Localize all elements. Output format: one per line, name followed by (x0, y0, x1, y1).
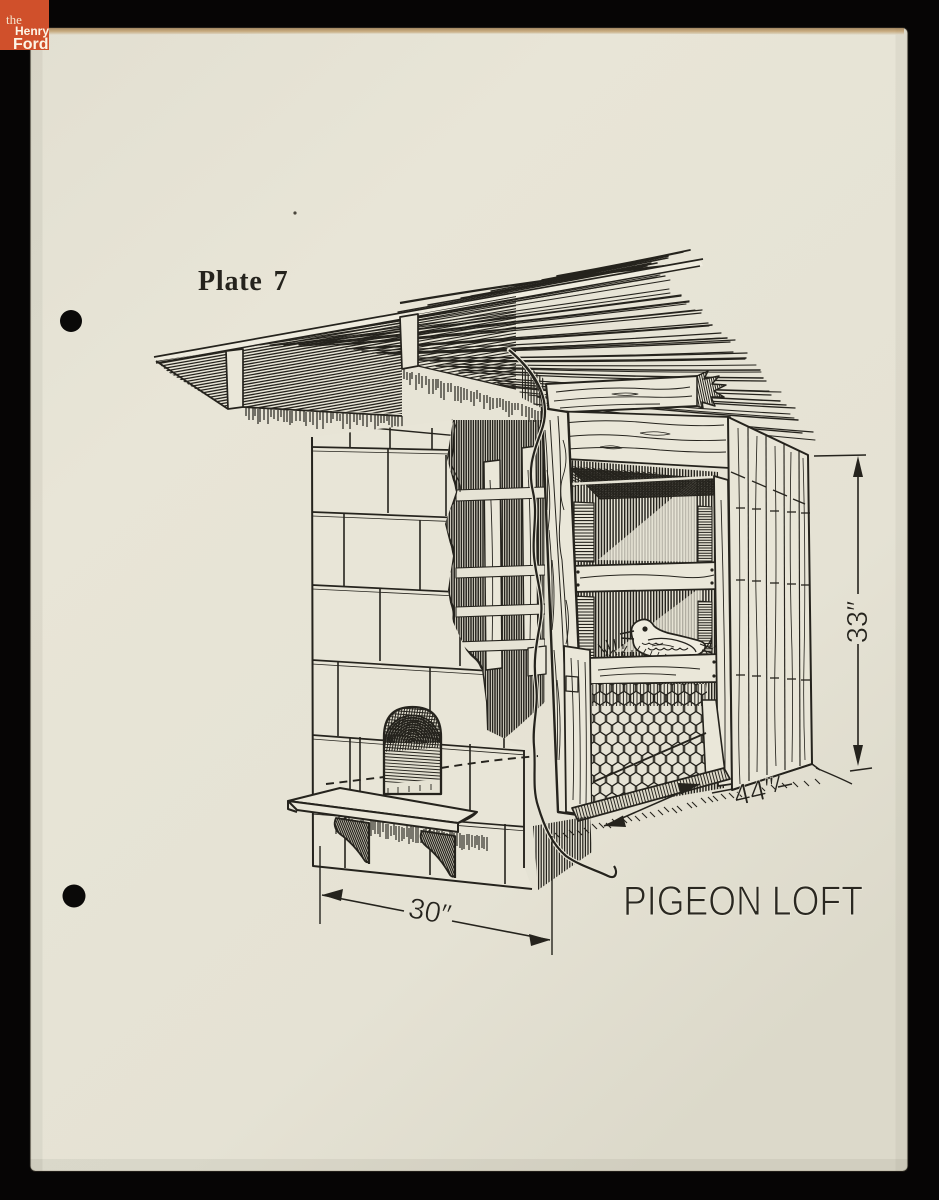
svg-text:33″: 33″ (842, 601, 874, 644)
svg-text:Plate7: Plate7 (198, 266, 288, 297)
svg-text:Ford: Ford (13, 36, 49, 53)
svg-text:PIGEON LOFT: PIGEON LOFT (623, 877, 863, 924)
